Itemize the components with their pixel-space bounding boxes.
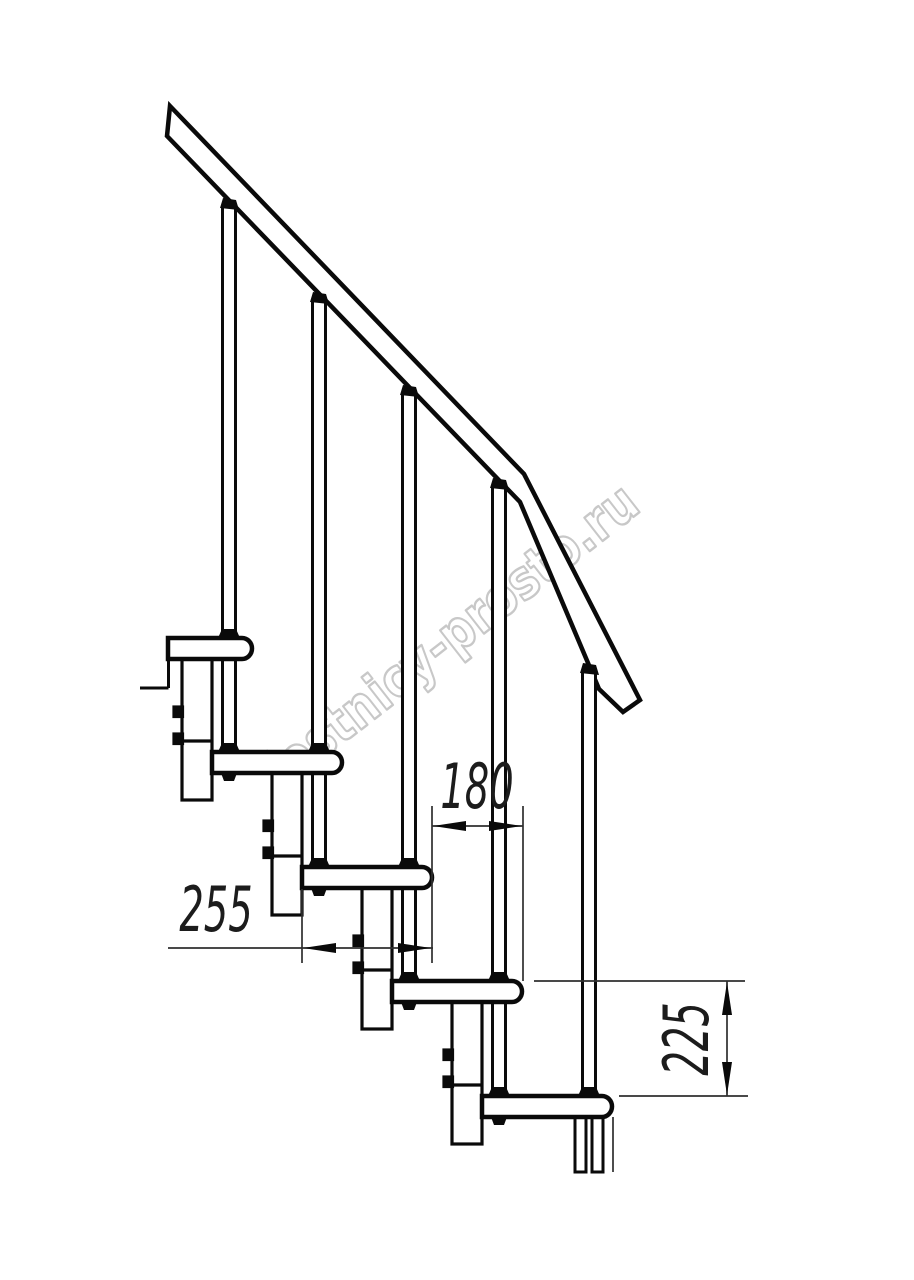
tread-5 [482, 1096, 612, 1117]
baluster-extension-1 [223, 659, 236, 752]
baluster-extension-5b [592, 1117, 603, 1172]
baluster-3 [403, 393, 416, 867]
tread-3 [302, 867, 432, 888]
staircase-technical-drawing: lestnicy-prosto.ru [0, 0, 914, 1280]
tread-1 [168, 638, 252, 659]
mounting-bolt [264, 821, 273, 831]
mounting-bolt [354, 963, 363, 973]
support-column-1 [174, 659, 212, 800]
baluster-4 [493, 486, 506, 981]
baluster-5 [583, 671, 596, 1096]
upper-module-remnant [140, 638, 169, 688]
baluster-extension-4 [493, 1002, 506, 1096]
mounting-bolt [444, 1050, 453, 1060]
mounting-bolt [444, 1077, 453, 1087]
balusters [223, 206, 604, 1172]
baluster-2 [313, 300, 326, 752]
dimension-180: 180 [432, 752, 523, 981]
arrowhead-left [303, 943, 336, 953]
support-column-2 [264, 773, 302, 915]
baluster-extension-3 [403, 888, 416, 981]
mounting-bolt [264, 848, 273, 858]
drawing-page: lestnicy-prosto.ru [0, 0, 914, 1280]
support-column-4 [444, 1002, 482, 1144]
dimension-label-255: 255 [179, 875, 252, 947]
baluster-extension-5 [575, 1117, 586, 1172]
mounting-bolt [354, 936, 363, 946]
dimension-label-225: 225 [652, 1002, 724, 1075]
baluster-extension-2 [313, 773, 326, 867]
mounting-bolt [174, 734, 183, 744]
baluster-1 [223, 206, 236, 638]
dimension-label-180: 180 [440, 752, 513, 824]
mounting-bolt [174, 707, 183, 717]
tread-4 [392, 981, 522, 1002]
tread-2 [212, 752, 342, 773]
dimension-225: 225 [534, 981, 748, 1172]
support-column-3 [354, 888, 392, 1029]
